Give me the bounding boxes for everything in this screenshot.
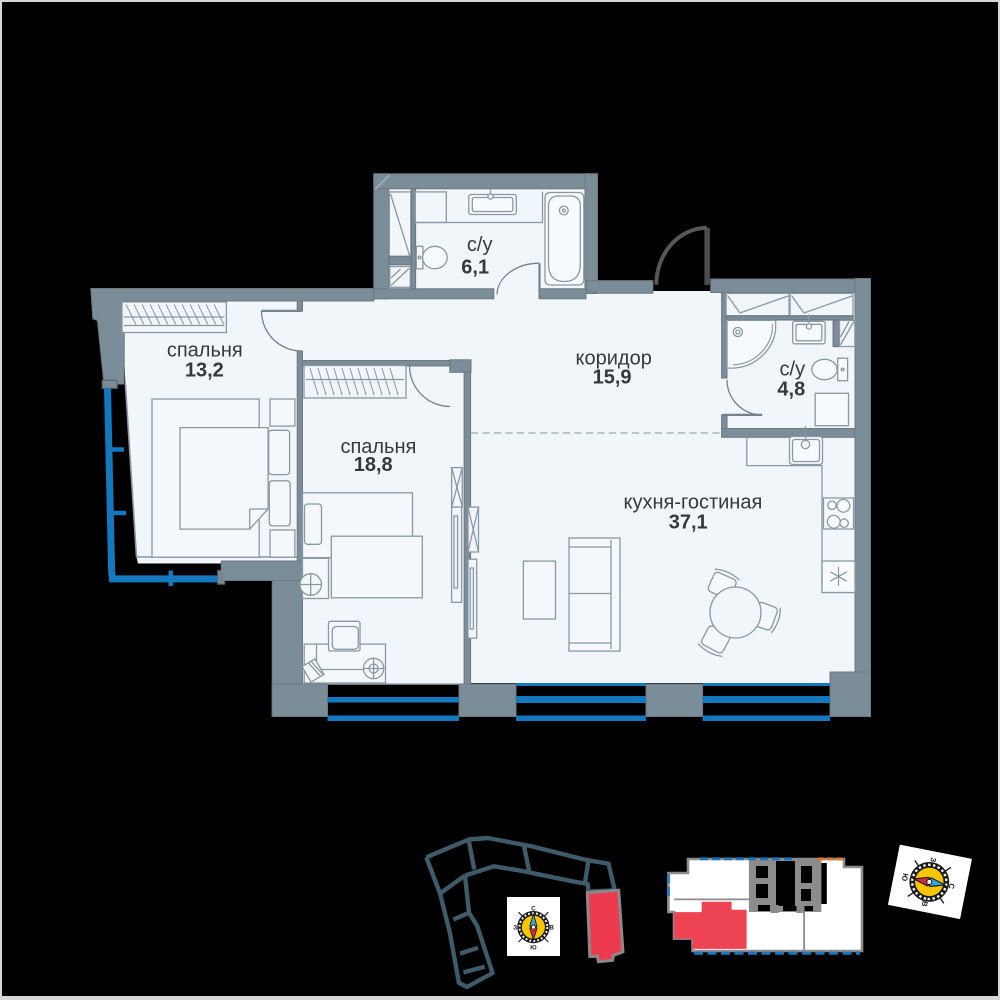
svg-text:6,1: 6,1	[461, 257, 489, 279]
svg-text:спальня: спальня	[167, 340, 243, 362]
svg-text:кухня-гостиная: кухня-гостиная	[623, 492, 762, 514]
svg-text:с/у: с/у	[780, 359, 806, 381]
svg-text:37,1: 37,1	[669, 512, 708, 534]
svg-text:15,9: 15,9	[593, 367, 632, 389]
svg-text:13,2: 13,2	[185, 360, 224, 382]
svg-text:18,8: 18,8	[354, 454, 393, 476]
svg-text:с/у: с/у	[467, 234, 493, 256]
svg-text:4,8: 4,8	[777, 379, 805, 401]
